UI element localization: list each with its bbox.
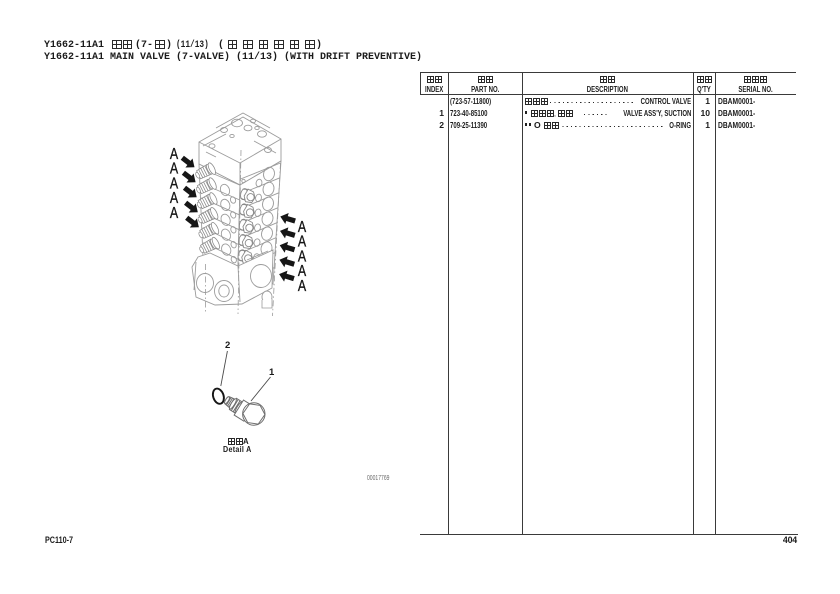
svg-text:A: A bbox=[298, 276, 307, 294]
svg-text:A: A bbox=[170, 204, 179, 222]
